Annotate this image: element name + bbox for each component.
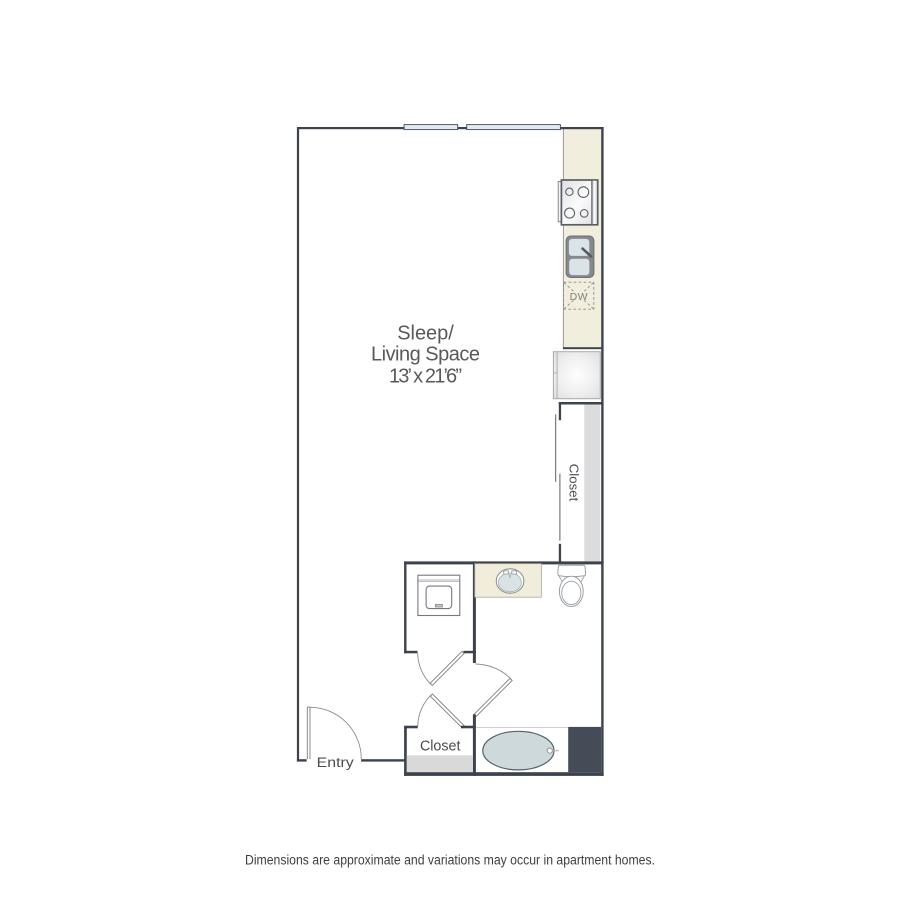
svg-text:Sleep/: Sleep/ bbox=[397, 323, 454, 345]
svg-text:Closet: Closet bbox=[420, 738, 461, 754]
svg-text:DW: DW bbox=[570, 291, 588, 303]
svg-text:Entry: Entry bbox=[317, 755, 354, 770]
svg-text:13’ x 21’6”: 13’ x 21’6” bbox=[389, 366, 462, 388]
svg-text:Living Space: Living Space bbox=[371, 344, 480, 366]
svg-text:Closet: Closet bbox=[567, 464, 581, 502]
svg-text:Dimensions are approximate and: Dimensions are approximate and variation… bbox=[245, 853, 655, 868]
